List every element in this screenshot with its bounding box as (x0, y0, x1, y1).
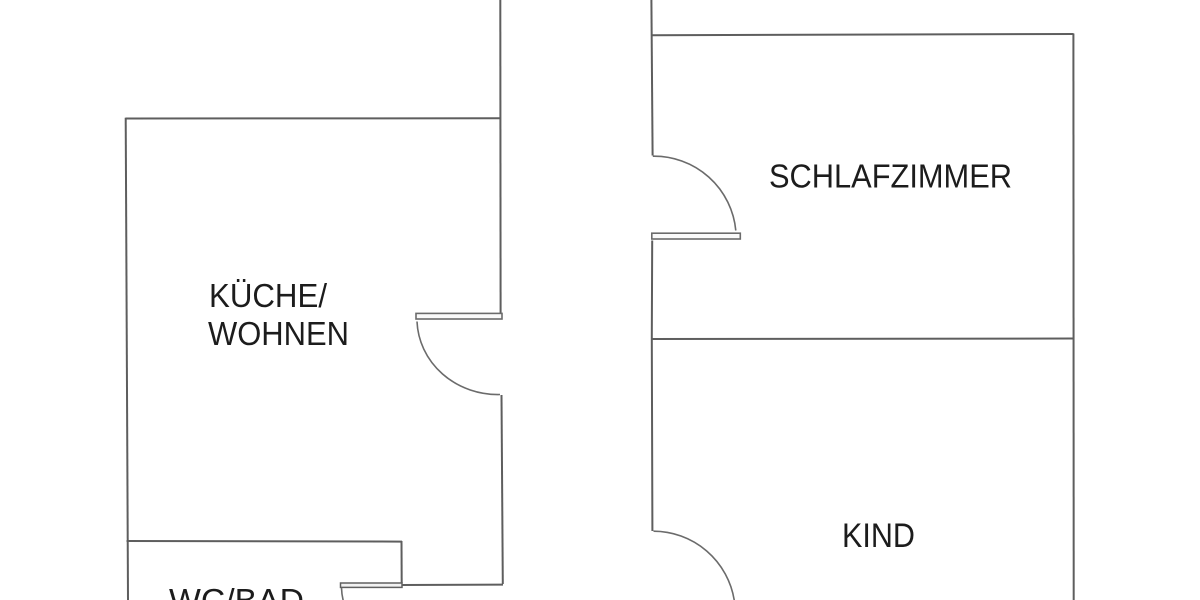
svg-text:SCHLAFZIMMER: SCHLAFZIMMER (769, 158, 1012, 195)
svg-text:KIND: KIND (842, 517, 915, 555)
svg-text:KÜCHE/: KÜCHE/ (209, 277, 328, 314)
svg-text:WC/BAD: WC/BAD (169, 582, 304, 600)
svg-text:WOHNEN: WOHNEN (208, 315, 349, 352)
